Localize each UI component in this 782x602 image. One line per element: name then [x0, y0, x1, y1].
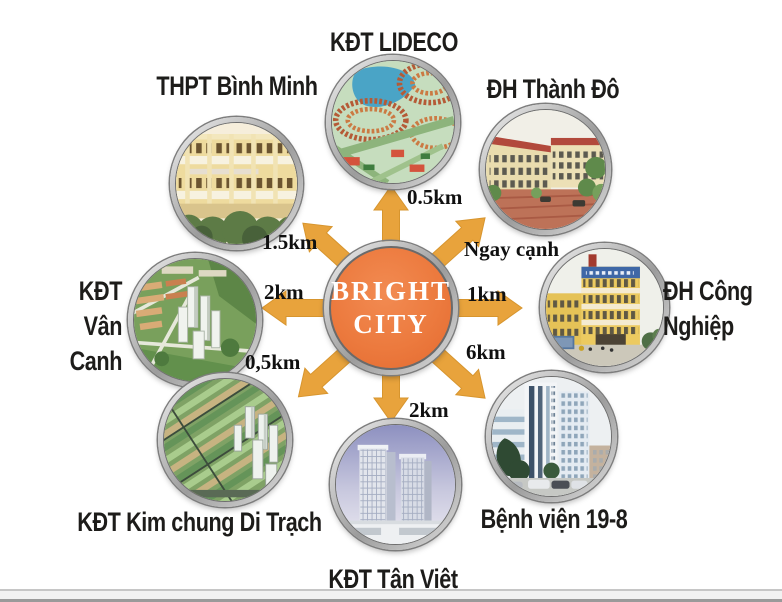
van-canh-aerial-photo [133, 258, 257, 382]
kim-chung-aerial-photo [163, 378, 287, 502]
arrow-bottom [374, 374, 408, 422]
location-circle-kdt-van-canh [128, 253, 262, 387]
location-circle-kdt-kim-chung-di-trach [158, 373, 292, 507]
distance-kdt-van-canh: 2km [264, 281, 304, 304]
label-kdt-kim-chung-di-trach: KĐT Kim chung Di Trạch [70, 505, 330, 540]
thanh-do-campus-photo [485, 109, 606, 230]
center-hub-circle: BRIGHT CITY [329, 246, 453, 370]
bottom-rule [0, 589, 782, 602]
label-kdt-lideco: KĐT LIDECO [296, 25, 491, 60]
center-title-line2: CITY [353, 308, 429, 341]
distance-dh-cong-nghiep: 1km [467, 283, 507, 306]
center-title-line1: BRIGHT [331, 275, 451, 308]
benh-vien-hospital-photo [491, 376, 612, 497]
label-dh-thanh-do: ĐH Thành Đô [465, 72, 641, 107]
distance-thpt-binh-minh: 1.5km [262, 231, 317, 254]
arrow-top [374, 186, 408, 242]
bright-city-location-diagram: BRIGHT CITY [0, 0, 782, 602]
label-van-canh-line1: KĐT [32, 274, 122, 309]
label-cong-nghiep-line1: ĐH Công [663, 274, 757, 309]
label-dh-cong-nghiep: ĐH Công Nghiệp [663, 274, 757, 344]
distance-kdt-tan-viet: 2km [409, 399, 449, 422]
cong-nghiep-building-photo [545, 248, 664, 367]
label-benh-vien-19-8: Bệnh viện 19-8 [466, 502, 642, 537]
label-kdt-van-canh: KĐT Vân Canh [32, 274, 122, 379]
lideco-aerial-photo [331, 60, 455, 184]
label-thpt-binh-minh: THPT Bình Minh [133, 69, 341, 104]
binh-minh-school-photo [175, 122, 298, 245]
label-cong-nghiep-line2: Nghiệp [663, 309, 757, 344]
distance-kdt-lideco: 0.5km [407, 186, 462, 209]
location-circle-dh-cong-nghiep [540, 243, 669, 372]
label-van-canh-line2: Vân Canh [32, 309, 122, 379]
center-hub-bright-city: BRIGHT CITY [324, 241, 458, 375]
location-circle-benh-vien-19-8 [486, 371, 617, 502]
location-circle-kdt-tan-viet [330, 419, 461, 550]
distance-dh-thanh-do: Ngay cạnh [464, 238, 559, 261]
tan-viet-towers-photo [335, 424, 456, 545]
location-circle-kdt-lideco [326, 55, 460, 189]
distance-kdt-kim-chung-di-trach: 0,5km [245, 351, 300, 374]
distance-benh-vien-19-8: 6km [466, 341, 506, 364]
location-circle-dh-thanh-do [480, 104, 611, 235]
